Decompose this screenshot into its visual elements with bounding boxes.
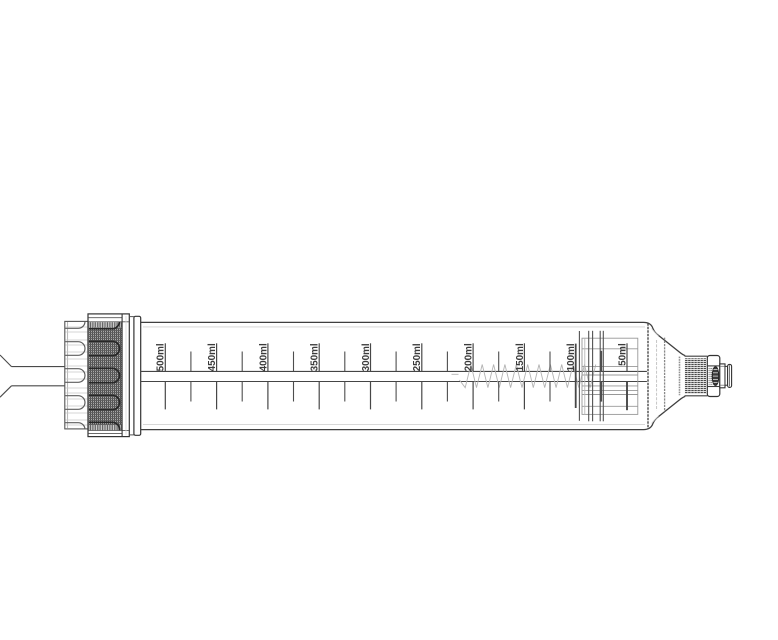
svg-text:200ml: 200ml	[464, 343, 475, 371]
svg-text:100ml: 100ml	[566, 343, 577, 371]
svg-text:150ml: 150ml	[515, 343, 526, 371]
svg-text:50ml: 50ml	[617, 343, 628, 366]
svg-text:500ml: 500ml	[156, 343, 167, 371]
svg-text:350ml: 350ml	[310, 343, 321, 371]
svg-text:300ml: 300ml	[361, 343, 372, 371]
svg-text:450ml: 450ml	[207, 343, 218, 371]
svg-text:250ml: 250ml	[412, 343, 423, 371]
svg-text:400ml: 400ml	[258, 343, 269, 371]
